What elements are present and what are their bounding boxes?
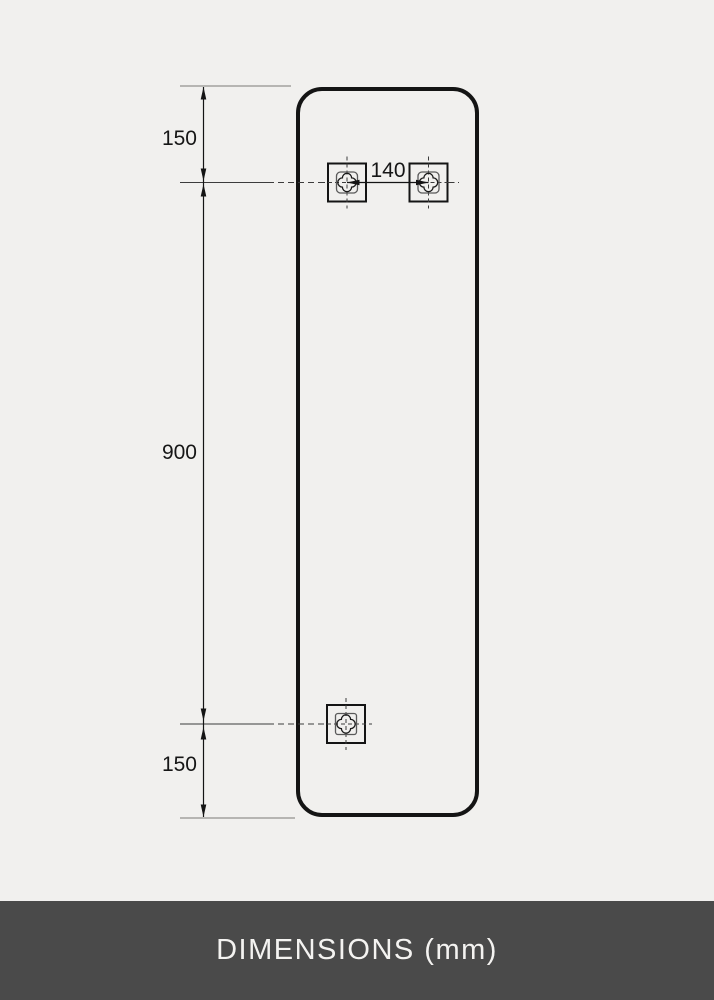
arrowhead-up-icon [201, 727, 207, 740]
arrowhead-down-icon [201, 169, 207, 182]
dim-label-height: 900 [162, 441, 197, 464]
arrowhead-up-icon [201, 184, 207, 197]
dim-label-bracket-spacing: 140 [370, 159, 405, 182]
footer-title: DIMENSIONS (mm) [216, 934, 498, 967]
arrowhead-up-icon [201, 87, 207, 100]
drawing-canvas: 150 900 150 140 [0, 0, 714, 901]
page: 150 900 150 140 DIMENSIONS (mm) [0, 0, 714, 1000]
dim-label-bottom-offset: 150 [162, 753, 197, 776]
arrowhead-down-icon [201, 709, 207, 722]
vertical-dimension-line [201, 87, 207, 817]
footer-bar: DIMENSIONS (mm) [0, 901, 714, 1000]
dim-label-top-offset: 150 [162, 127, 197, 150]
mounting-bracket-bottom [320, 698, 372, 750]
panel-outline [298, 89, 477, 815]
arrowhead-down-icon [201, 805, 207, 818]
technical-drawing-svg: 150 900 150 140 [0, 0, 714, 901]
